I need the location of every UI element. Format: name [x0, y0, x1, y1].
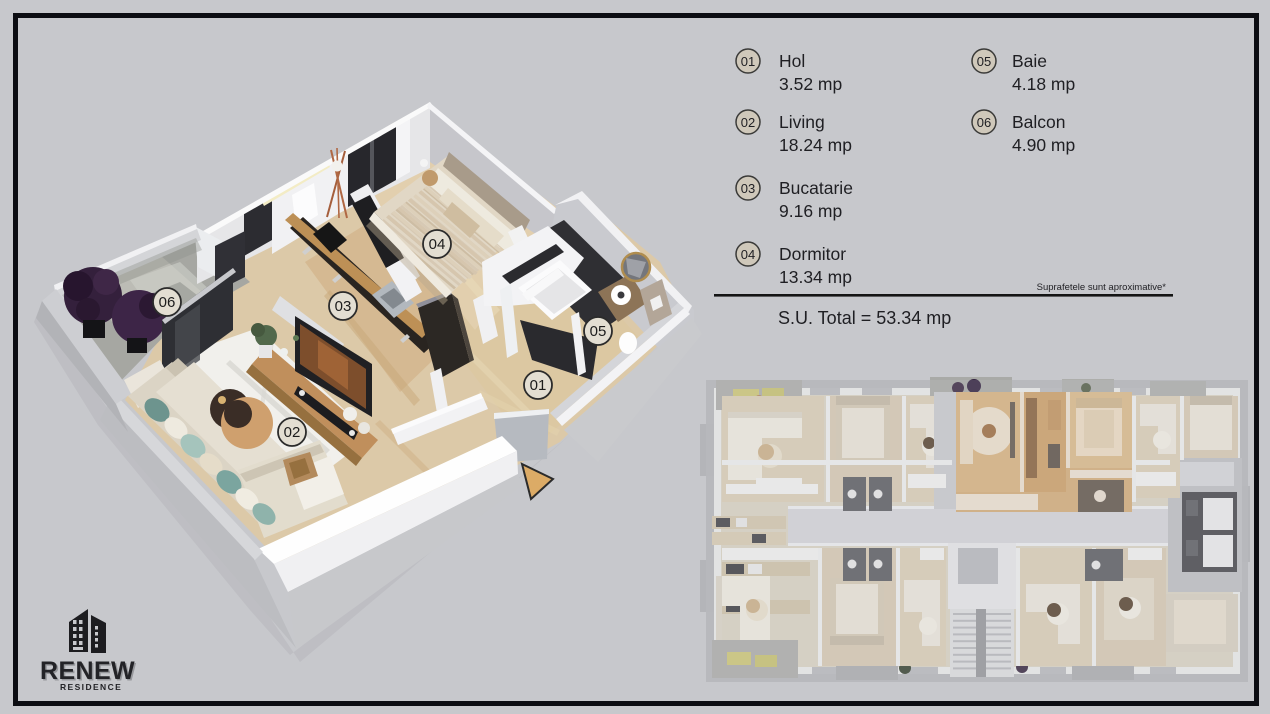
svg-text:06: 06 — [159, 294, 176, 311]
svg-text:05: 05 — [590, 323, 607, 340]
svg-text:3.52 mp: 3.52 mp — [779, 74, 842, 94]
svg-text:Living: Living — [779, 112, 825, 132]
svg-text:04: 04 — [741, 247, 755, 262]
svg-text:4.18 mp: 4.18 mp — [1012, 74, 1075, 94]
svg-text:S.U. Total = 53.34 mp: S.U. Total = 53.34 mp — [778, 308, 951, 328]
svg-text:RENEW: RENEW — [40, 657, 135, 685]
svg-text:Hol: Hol — [779, 51, 805, 71]
svg-text:04: 04 — [429, 236, 446, 253]
svg-text:Suprafetele sunt aproximative*: Suprafetele sunt aproximative* — [1037, 282, 1167, 293]
svg-text:03: 03 — [335, 298, 352, 315]
svg-text:13.34 mp: 13.34 mp — [779, 267, 852, 287]
svg-text:RESIDENCE: RESIDENCE — [60, 682, 122, 692]
svg-text:9.16 mp: 9.16 mp — [779, 201, 842, 221]
svg-text:4.90 mp: 4.90 mp — [1012, 135, 1075, 155]
svg-text:Bucatarie: Bucatarie — [779, 178, 853, 198]
svg-text:03: 03 — [741, 181, 755, 196]
svg-text:02: 02 — [284, 424, 301, 441]
svg-text:18.24 mp: 18.24 mp — [779, 135, 852, 155]
svg-text:Dormitor: Dormitor — [779, 244, 846, 264]
svg-text:01: 01 — [741, 54, 755, 69]
svg-text:06: 06 — [977, 115, 991, 130]
svg-text:05: 05 — [977, 54, 991, 69]
svg-text:02: 02 — [741, 115, 755, 130]
svg-text:Baie: Baie — [1012, 51, 1047, 71]
svg-text:01: 01 — [530, 377, 547, 394]
svg-text:Balcon: Balcon — [1012, 112, 1066, 132]
